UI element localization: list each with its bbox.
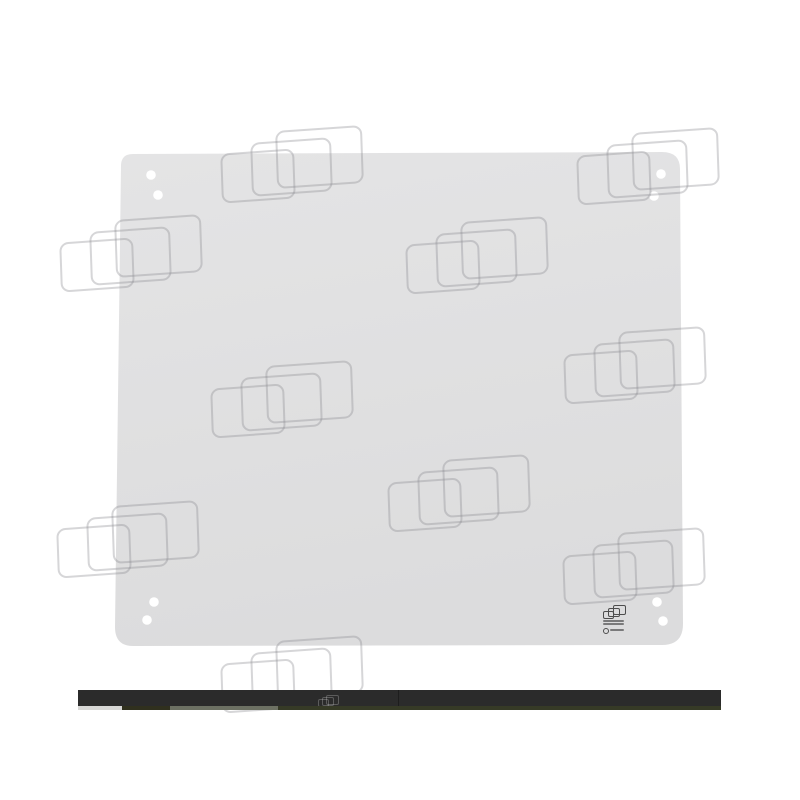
watermark-rectangle-icon bbox=[617, 527, 706, 591]
stamp-logo-icon bbox=[603, 605, 625, 618]
watermark-rectangle-icon bbox=[265, 360, 354, 424]
dark-rubber-strip bbox=[78, 690, 721, 706]
strip-edge-segment bbox=[170, 706, 278, 710]
watermark-rectangle-icon bbox=[442, 454, 531, 518]
watermark-rectangle-icon bbox=[631, 127, 720, 191]
watermark-rectangle-icon bbox=[275, 125, 364, 189]
watermark-rectangle-icon bbox=[460, 216, 549, 280]
glass-stamp bbox=[602, 605, 628, 633]
mounting-hole bbox=[652, 597, 662, 607]
watermark-rectangle-icon bbox=[114, 214, 203, 278]
strip-edge-segment bbox=[122, 706, 170, 710]
strip-lower-edge bbox=[78, 706, 721, 710]
mounting-hole bbox=[658, 616, 668, 626]
mounting-hole bbox=[153, 190, 163, 200]
watermark-rectangle-icon bbox=[618, 326, 707, 390]
strip-seam bbox=[398, 690, 399, 706]
mounting-hole bbox=[149, 597, 159, 607]
watermark-rectangle-icon bbox=[111, 500, 200, 564]
strip-edge-segment bbox=[278, 706, 721, 710]
product-photo bbox=[0, 0, 800, 800]
glass-panel bbox=[0, 0, 800, 800]
strip-edge-segment bbox=[78, 706, 122, 710]
mounting-hole bbox=[146, 170, 156, 180]
mounting-hole bbox=[142, 615, 152, 625]
next-image-strip bbox=[78, 690, 721, 710]
